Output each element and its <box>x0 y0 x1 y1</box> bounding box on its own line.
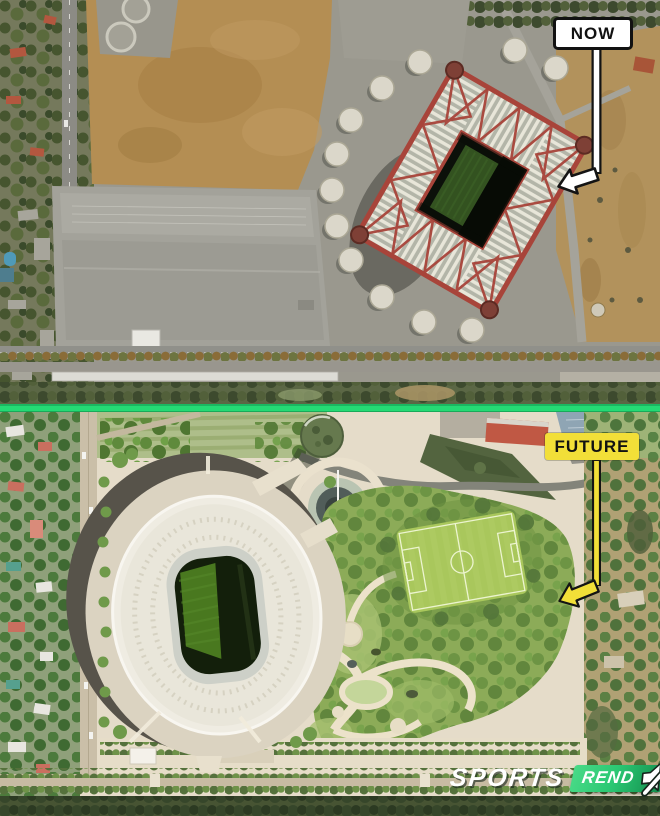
parking-lots <box>52 186 330 348</box>
helix-ramp <box>107 23 135 51</box>
watermark-chip: REND <box>569 765 660 792</box>
tree-row <box>0 348 660 361</box>
now-label: NOW <box>553 17 633 50</box>
helix-ramp <box>123 0 149 22</box>
stadium-comparison-graphic: NOW FUTURE SPORTS REND <box>0 0 660 816</box>
swimming-pool <box>4 252 16 266</box>
watermark: SPORTS REND <box>450 761 660 795</box>
now-label-text: NOW <box>571 24 616 44</box>
divider-line <box>0 404 660 412</box>
future-label-text: FUTURE <box>555 437 630 457</box>
future-label: FUTURE <box>545 433 639 460</box>
watermark-chip-text: REND <box>581 768 636 788</box>
muted-speaker-icon <box>634 753 660 799</box>
watermark-brand: SPORTS <box>448 764 565 793</box>
tennis-court <box>0 268 14 282</box>
future-arrow-icon <box>520 460 620 620</box>
now-arrow-icon <box>520 44 620 214</box>
green-tower <box>301 415 343 457</box>
